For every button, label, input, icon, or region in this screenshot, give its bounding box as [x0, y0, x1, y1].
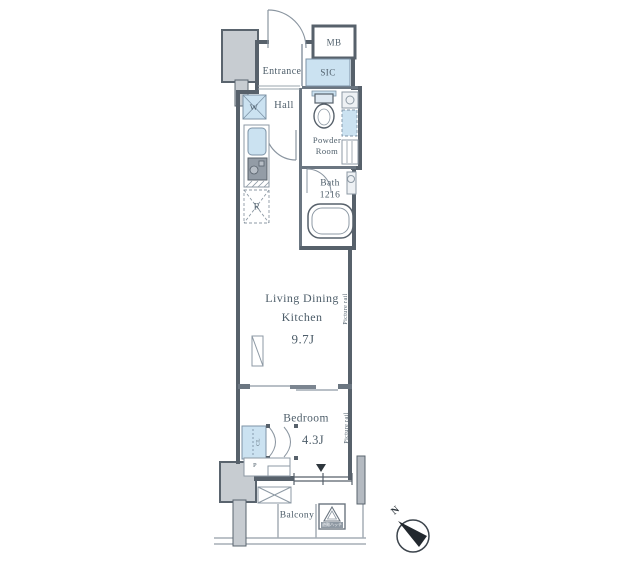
label-washer: W	[250, 103, 258, 112]
label-sic: SIC	[320, 69, 335, 78]
balcony-window	[294, 473, 352, 485]
label-hall: Hall	[274, 101, 294, 112]
toilet-tank	[315, 94, 333, 103]
ac-unit	[258, 487, 291, 503]
hall-door	[266, 130, 296, 160]
label-ldk-2: Kitchen	[282, 311, 323, 323]
label-pipe: P	[253, 463, 257, 470]
label-powder-1: Powder	[313, 136, 341, 145]
label-entrance: Entrance	[263, 67, 302, 77]
label-ldk-size: 9.7J	[292, 333, 315, 346]
label-bath: Bath	[320, 179, 340, 189]
shelf	[342, 140, 358, 164]
label-picture-rail-ldk: Picture rail	[343, 293, 349, 324]
column-right-bar	[357, 456, 365, 504]
toilet-bowl	[314, 104, 334, 128]
bathtub	[308, 204, 353, 238]
label-closet: CL	[256, 438, 262, 446]
kitchen-sink	[248, 128, 266, 155]
label-evac-hatch: 避難ハッチ	[322, 523, 342, 527]
label-bedroom: Bedroom	[283, 413, 329, 425]
column-bottom-stem	[233, 500, 246, 546]
laundry-space	[342, 110, 357, 136]
sliding-partition	[250, 385, 338, 390]
entrance-door	[268, 10, 306, 48]
label-fridge: R	[254, 203, 260, 212]
label-powder-2: Room	[316, 147, 338, 156]
vanity-sink	[342, 92, 358, 108]
label-ldk-1: Living Dining	[265, 292, 339, 304]
floor-plan-drawing	[0, 0, 640, 569]
compass-icon	[397, 520, 429, 552]
floor-plan: MB Entrance SIC Hall W Powder Room Bath …	[0, 0, 640, 569]
closet-folding-doors	[269, 427, 291, 457]
column-top-left	[222, 30, 258, 82]
label-mb: MB	[327, 39, 342, 48]
pipe-space	[244, 458, 290, 476]
label-balcony: Balcony	[280, 511, 314, 521]
entry-direction-marker	[316, 464, 326, 472]
label-picture-rail-bedroom: Picture rail	[344, 412, 350, 443]
ldk-fixture	[252, 336, 263, 366]
label-bath-size: 1216	[320, 191, 341, 201]
entrance-area	[258, 86, 300, 89]
label-bedroom-size: 4.3J	[302, 434, 324, 447]
closet	[242, 424, 298, 460]
